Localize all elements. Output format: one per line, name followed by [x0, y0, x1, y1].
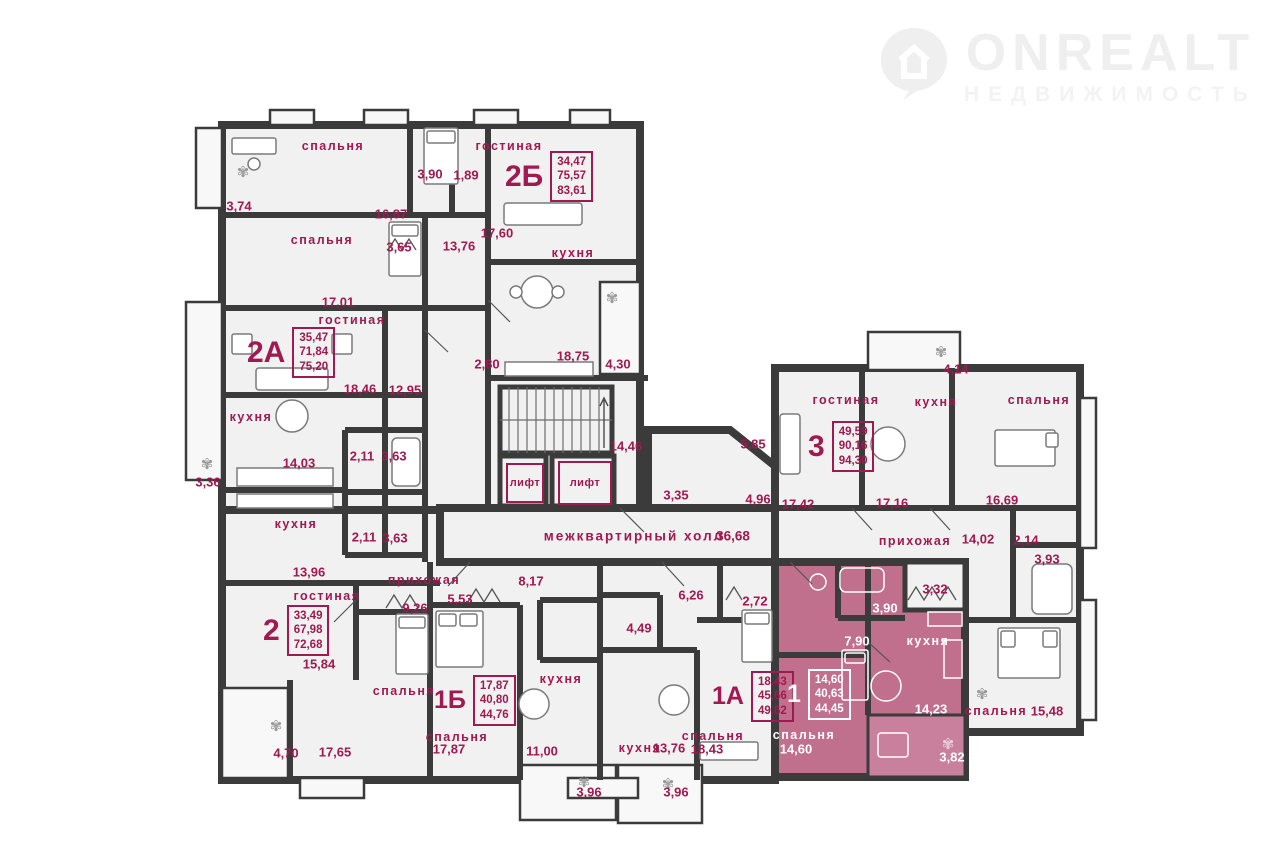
dimension-label: 4,14: [943, 362, 968, 377]
dimension-label: 9,26: [402, 601, 427, 616]
dimension-label: 3,82: [939, 750, 964, 765]
apartment-area-value: 34,47: [557, 155, 586, 169]
dimension-label: 3,96: [663, 785, 688, 800]
apartment-id: 1: [787, 682, 801, 707]
dimension-label: 2,72: [742, 594, 767, 609]
svg-text:✾: ✾: [976, 686, 989, 703]
apartment-area-value: 94,30: [839, 454, 868, 468]
dimension-label: 12,95: [389, 383, 422, 398]
dimension-label: 3,93: [1034, 552, 1059, 567]
dimension-label: 3,35: [663, 488, 688, 503]
dimension-label: 17,65: [319, 745, 352, 760]
dimension-label: 5,85: [740, 437, 765, 452]
apartment-area-value: 83,61: [557, 184, 586, 198]
apartment-id: 1А: [712, 684, 744, 709]
dimension-label: 2,80: [474, 357, 499, 372]
elevator-2: лифт: [558, 461, 612, 505]
dimension-label: 17,01: [322, 295, 355, 310]
room-label: кухня: [540, 672, 583, 686]
dimension-label: 3,96: [576, 785, 601, 800]
dimension-label: 3,36: [195, 475, 220, 490]
hall-label: межквартирный холл: [544, 529, 724, 544]
dimension-label: 3,63: [381, 449, 406, 464]
apartment-info-2Б[interactable]: 2Б34,4775,5783,61: [505, 151, 593, 202]
room-label: гостиная: [318, 313, 385, 327]
apartment-areas-box: 17,8740,8044,76: [473, 675, 516, 726]
apartment-area-value: 17,87: [480, 679, 509, 693]
dimension-label: 14,23: [915, 702, 948, 717]
dimension-label: 7,90: [844, 634, 869, 649]
apartment-areas-box: 49,5990,1694,30: [832, 421, 875, 472]
room-label: кухня: [552, 246, 595, 260]
dimension-label: 3,90: [872, 601, 897, 616]
room-label: кухня: [275, 517, 318, 531]
apartment-areas-box: 33,4967,9872,68: [287, 605, 330, 656]
floor-plan-drawing: ✾ ✾ ✾ ✾ ✾ ✾ ✾ ✾ ✾: [0, 0, 1280, 855]
house-pin-icon: [878, 26, 950, 102]
dimension-label: 3,65: [386, 240, 411, 255]
room-label: спальня: [773, 728, 835, 742]
dimension-label: 3,32: [922, 582, 947, 597]
floor-plan-page: ✾ ✾ ✾ ✾ ✾ ✾ ✾ ✾ ✾ ONREALT НЕДВИЖИМОСТЬ м…: [0, 0, 1280, 855]
dimension-label: 13,96: [293, 565, 326, 580]
logo-brand: ONREALT: [966, 26, 1255, 81]
dimension-label: 17,87: [433, 742, 466, 757]
apartment-areas-box: 34,4775,5783,61: [550, 151, 593, 202]
dimension-label: 13,76: [443, 239, 476, 254]
dimension-label: 14,02: [962, 532, 995, 547]
apartment-areas-box: 14,6040,6344,45: [808, 669, 851, 720]
svg-text:✾: ✾: [270, 718, 283, 735]
stairs: [500, 387, 612, 453]
dimension-label: 18,46: [344, 382, 377, 397]
apartment-area-value: 75,57: [557, 169, 586, 183]
svg-text:✾: ✾: [237, 164, 250, 181]
apartment-area-value: 67,98: [294, 623, 323, 637]
dimension-label: 15,48: [1031, 704, 1064, 719]
dimension-label: 3,90: [417, 167, 442, 182]
dimension-label: 4,49: [626, 621, 651, 636]
logo: ONREALT НЕДВИЖИМОСТЬ: [878, 26, 1257, 107]
dimension-label: 11,00: [526, 744, 558, 759]
dimension-label: 8,17: [518, 574, 543, 589]
dimension-label: 18,75: [557, 349, 590, 364]
apartment-id: 2Б: [505, 162, 543, 192]
room-label: прихожая: [879, 534, 951, 548]
apartment-area-value: 33,49: [294, 609, 323, 623]
apartment-info-1Б[interactable]: 1Б17,8740,8044,76: [434, 675, 516, 726]
elevator-1: лифт: [506, 463, 544, 503]
apartment-id: 2А: [247, 338, 285, 368]
dimension-label: 3,63: [382, 531, 407, 546]
room-label: спальня: [302, 139, 364, 153]
dimension-label: 17,60: [481, 226, 514, 241]
apartment-area-value: 18,43: [758, 675, 787, 689]
apartment-area-value: 75,20: [299, 360, 328, 374]
apartment-id: 2: [263, 616, 280, 646]
apartment-id: 3: [808, 432, 825, 462]
room-label: спальня: [373, 684, 435, 698]
dimension-label: 18,43: [691, 742, 724, 757]
dimension-label: 14,46: [610, 439, 643, 454]
dimension-label: 13,76: [653, 741, 686, 756]
room-label: кухня: [915, 395, 958, 409]
apartment-area-value: 44,76: [480, 708, 509, 722]
dimension-label: 4,96: [745, 492, 770, 507]
dimension-label: 16,87: [375, 207, 408, 222]
apartment-info-1А[interactable]: 1А18,4345,6649,62: [712, 671, 794, 722]
dimension-label: 2,11: [352, 530, 377, 545]
room-label: кухня: [230, 410, 273, 424]
apartment-area-value: 44,45: [815, 702, 844, 716]
dimension-label: 15,84: [303, 657, 336, 672]
apartment-area-value: 71,84: [299, 345, 328, 359]
apartment-area-value: 49,62: [758, 704, 787, 718]
apartment-areas-box: 35,4771,8475,20: [292, 327, 335, 378]
apartment-area-value: 35,47: [299, 331, 328, 345]
dimension-label: 14,60: [780, 742, 813, 757]
room-label: гостиная: [812, 393, 879, 407]
apartment-area-value: 45,66: [758, 689, 787, 703]
dimension-label: 2,11: [350, 449, 375, 464]
dimension-label: 17,42: [782, 497, 815, 512]
apartment-area-value: 90,16: [839, 439, 868, 453]
logo-tagline: НЕДВИЖИМОСТЬ: [964, 83, 1257, 107]
svg-text:✾: ✾: [606, 290, 619, 307]
apartment-info-3[interactable]: 349,5990,1694,30: [808, 421, 874, 472]
svg-text:✾: ✾: [201, 456, 214, 473]
dimension-label: 1,89: [453, 168, 478, 183]
dimension-label: 3,74: [226, 199, 251, 214]
dimension-label: 4,30: [605, 357, 630, 372]
room-label: спальня: [291, 233, 353, 247]
apartment-area-value: 14,60: [815, 673, 844, 687]
dimension-label: 14,03: [283, 456, 316, 471]
apartment-area-value: 40,63: [815, 687, 844, 701]
apartment-info-1[interactable]: 114,6040,6344,45: [787, 669, 851, 720]
hall-area: 36,68: [716, 529, 750, 544]
dimension-label: 4,70: [273, 746, 298, 761]
apartment-id: 1Б: [434, 688, 466, 713]
apartment-info-2А[interactable]: 2А35,4771,8475,20: [247, 327, 335, 378]
svg-text:✾: ✾: [935, 344, 948, 361]
room-label: гостиная: [293, 589, 360, 603]
dimension-label: 16,69: [986, 493, 1019, 508]
dimension-label: 6,26: [678, 588, 703, 603]
apartment-info-2[interactable]: 233,4967,9872,68: [263, 605, 329, 656]
room-label: спальня: [965, 704, 1027, 718]
room-label: кухня: [907, 634, 950, 648]
apartment-area-value: 72,68: [294, 638, 323, 652]
dimension-label: 2,14: [1013, 533, 1038, 548]
dimension-label: 17,16: [876, 496, 909, 511]
apartment-area-value: 49,59: [839, 425, 868, 439]
room-label: спальня: [1008, 393, 1070, 407]
room-label: прихожая: [388, 573, 460, 587]
dimension-label: 5,53: [447, 592, 472, 607]
apartment-area-value: 40,80: [480, 693, 509, 707]
